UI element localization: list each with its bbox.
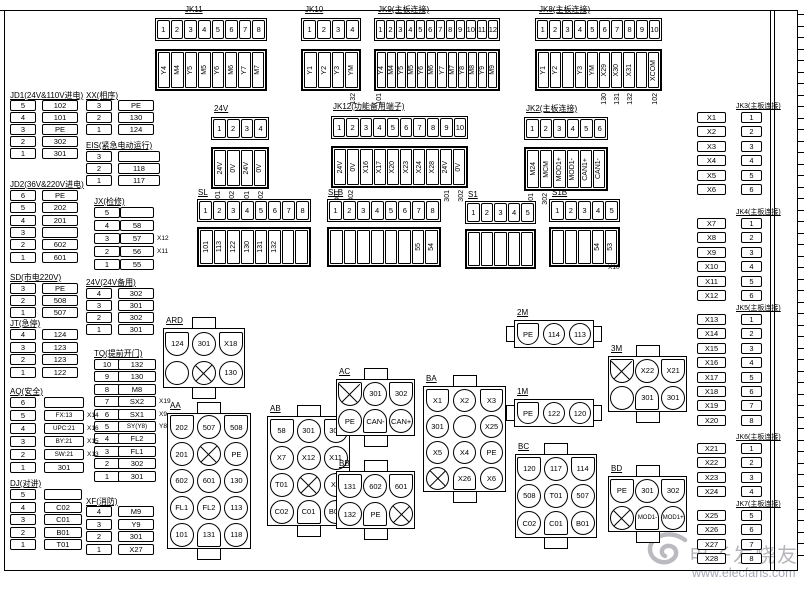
frame-tick bbox=[797, 210, 804, 211]
list-tq-val-SX1: SX1 bbox=[118, 409, 156, 420]
strip-jk12-label-text: 0V bbox=[350, 163, 357, 172]
strip-sl-label-text: 101 bbox=[203, 241, 210, 253]
list-sd-title: SD(市电220V) bbox=[10, 274, 61, 283]
strip-v24-label-text: 24V bbox=[217, 162, 224, 174]
strip-jk11-pin-7: 7 bbox=[239, 20, 252, 39]
frame-tick bbox=[797, 486, 804, 487]
frame-tick bbox=[797, 325, 804, 326]
block-ard-pin-124: 124 bbox=[165, 332, 189, 356]
strip-jk2-wire-text: 302 bbox=[542, 193, 549, 205]
frame-tick bbox=[797, 555, 804, 556]
jk5-title: JK5(主板连接) bbox=[736, 305, 781, 313]
strip-v24-title: 24V bbox=[214, 105, 228, 114]
strip-v24-pin-2: 2 bbox=[227, 119, 240, 138]
strip-jk11-pin-1: 1 bbox=[157, 20, 170, 39]
strip-slb-pin-row: 12345678 bbox=[327, 199, 441, 222]
block-m2-pin-113: 113 bbox=[569, 323, 591, 345]
block-ab-pin-301: 301 bbox=[297, 419, 321, 443]
list-tq-num-1: 1 bbox=[94, 471, 120, 482]
strip-jk9-pin-9: 9 bbox=[456, 20, 465, 39]
jk4-terminal-x12: X12 bbox=[697, 290, 726, 301]
strip-jk12-label-text: 0V bbox=[455, 163, 462, 172]
strip-s1b-label-text: 53 bbox=[607, 243, 614, 251]
strip-jk8-label-row: Y1Y2Y3YMX29X30X31XCOM bbox=[535, 49, 662, 91]
strip-jk11-pin-5: 5 bbox=[212, 20, 225, 39]
jk3-terminal-x1: X1 bbox=[697, 112, 726, 123]
block-ard-pin-130: 130 bbox=[219, 361, 243, 385]
list-jd1-val-PE: PE bbox=[42, 124, 78, 135]
strip-jk12-label-text: X23 bbox=[403, 161, 410, 173]
block-aa-pin-118: 118 bbox=[224, 523, 248, 547]
strip-jk8-pin-row: 12345678910 bbox=[535, 18, 662, 41]
annotation-x13: X13 bbox=[87, 451, 99, 458]
block-m1-pin-pe: PE bbox=[517, 402, 539, 424]
block-bd: PE301302MOD1-MOD1+ bbox=[608, 476, 687, 532]
frame-tick bbox=[797, 417, 804, 418]
block-m2-pin-pe: PE bbox=[517, 323, 539, 345]
strip-s1b-pin-row: 12345 bbox=[549, 199, 620, 222]
list-v24b-num-3: 3 bbox=[86, 300, 112, 311]
strip-jk8-pin-4: 4 bbox=[574, 20, 585, 39]
strip-jk9-label-text: Y7 bbox=[439, 66, 446, 75]
block-bd-pin-grid: PE301302MOD1-MOD1+ bbox=[609, 477, 686, 531]
strip-jk10-label-text: Y2 bbox=[321, 66, 328, 75]
strip-jk8-pin-6: 6 bbox=[599, 20, 610, 39]
block-aa-pin-507: 507 bbox=[197, 415, 221, 439]
strip-jk10-label-2: Y2 bbox=[318, 52, 331, 88]
block-aa-pin-113: 113 bbox=[224, 496, 248, 520]
strip-v24-label-2: 0V bbox=[227, 150, 239, 186]
block-ba-pin-x1: X1 bbox=[426, 389, 449, 412]
strip-jk12-wire-text: 301 bbox=[444, 190, 451, 202]
block-ac-pin-pe: PE bbox=[338, 409, 362, 433]
strip-jk8-label-9 bbox=[636, 52, 647, 88]
strip-jk9-label-3: Y5 bbox=[397, 52, 406, 88]
list-jd2-val-602: 602 bbox=[42, 239, 78, 250]
jk4-pin-5: 5 bbox=[741, 276, 762, 287]
jk6-pin-4: 4 bbox=[741, 486, 762, 497]
strip-jk10-label-text: Y3 bbox=[334, 66, 341, 75]
wiring-diagram-page: 电子发烧友 www.elecfans.com JK1112345678Y4M4Y… bbox=[0, 0, 804, 593]
block-bc-pin-508: 508 bbox=[517, 484, 541, 508]
strip-s1b-label-1 bbox=[552, 230, 564, 264]
block-bc: 120117114508T01507C02C01B01 bbox=[515, 454, 597, 538]
list-xx-num-1: 1 bbox=[86, 124, 112, 135]
block-ba-pin-x2: X2 bbox=[453, 389, 476, 412]
strip-v24-label-text: 24V bbox=[243, 162, 250, 174]
strip-jk8-wire-text: 102 bbox=[652, 93, 659, 105]
frame-tick bbox=[797, 371, 804, 372]
jk3-pin-5: 5 bbox=[741, 170, 762, 181]
strip-jk8-label-text: Y3 bbox=[577, 66, 584, 75]
strip-sl-pin-8: 8 bbox=[296, 201, 309, 220]
frame-bottom-line bbox=[4, 570, 797, 571]
strip-v24-label-1: 24V bbox=[214, 150, 226, 186]
strip-jk9-label-row: Y4M4Y5M5Y6M6Y7M7Y8M8Y9M9 bbox=[374, 49, 500, 91]
block-bc-pin-120: 120 bbox=[517, 457, 541, 481]
frame-tick bbox=[797, 26, 804, 27]
block-aa-pin-602: 602 bbox=[170, 469, 194, 493]
block-m3-tab-bottom bbox=[636, 411, 660, 423]
block-ac-pin-can+: CAN+ bbox=[389, 409, 413, 433]
strip-jk8-wire-text: 132 bbox=[627, 93, 634, 105]
strip-jk11-label-text: M7 bbox=[254, 65, 261, 75]
block-ba-pin-x4: X4 bbox=[453, 441, 476, 464]
list-v24b-num-2: 2 bbox=[86, 312, 112, 323]
list-sd-val-PE: PE bbox=[42, 283, 78, 294]
list-tq-val-SY(Y8): SY(Y8) bbox=[118, 421, 156, 432]
block-m3-blank-pin bbox=[610, 386, 634, 410]
jk7-pin-6: 6 bbox=[741, 524, 762, 535]
list-dj-val-C01: C01 bbox=[44, 514, 82, 525]
block-aa-pin-131: 131 bbox=[197, 523, 221, 547]
strip-sl-label-6: 132 bbox=[268, 230, 281, 264]
list-v24b-val-301: 301 bbox=[118, 300, 154, 311]
strip-jk8-wire-text: 130 bbox=[601, 93, 608, 105]
strip-v24-pin-row: 1234 bbox=[211, 117, 269, 140]
list-tq-val-132: 132 bbox=[118, 359, 156, 370]
list-tq-num-7: 7 bbox=[94, 396, 120, 407]
list-tq-val-301: 301 bbox=[118, 471, 156, 482]
frame-tick bbox=[797, 83, 804, 84]
jk5-pin-6: 6 bbox=[741, 386, 762, 397]
strip-jk9-label-text: Y5 bbox=[398, 66, 405, 75]
strip-jk10-pin-3: 3 bbox=[332, 20, 345, 39]
block-bb-tab-bottom bbox=[364, 528, 388, 540]
list-jd2-num-2: 2 bbox=[10, 239, 36, 250]
strip-jk9-label-text: M9 bbox=[489, 65, 496, 75]
strip-jk8-label-text: X29 bbox=[601, 64, 608, 76]
strip-sl-pin-4: 4 bbox=[241, 201, 254, 220]
block-m1-pin-grid: PE122120 bbox=[515, 400, 593, 426]
strip-slb-pin-5: 5 bbox=[385, 201, 398, 220]
strip-jk11-label-text: Y7 bbox=[241, 66, 248, 75]
jk3-pin-2: 2 bbox=[741, 126, 762, 137]
list-xf-val-301: 301 bbox=[118, 531, 154, 542]
block-m3-crossed-pin bbox=[610, 359, 634, 383]
block-ac-pin-can-: CAN- bbox=[363, 409, 387, 433]
list-tq-num-10: 10 bbox=[94, 359, 120, 370]
block-aa-pin-pe: PE bbox=[224, 442, 248, 466]
block-ard-pin-301: 301 bbox=[192, 332, 216, 356]
frame-left-line bbox=[4, 10, 5, 571]
block-m1-pin-120: 120 bbox=[569, 402, 591, 424]
strip-jk12-label-text: 24V bbox=[442, 161, 449, 173]
jk5-terminal-x13: X13 bbox=[697, 314, 726, 325]
strip-v24-label-4: 0V bbox=[254, 150, 266, 186]
jk6-pin-2: 2 bbox=[741, 457, 762, 468]
list-v24b-val-301: 301 bbox=[118, 324, 154, 335]
strip-jk11-title: JK11 bbox=[185, 6, 203, 15]
strip-jk9-label-1: Y4 bbox=[377, 52, 386, 88]
frame-right-inner-line-2 bbox=[774, 10, 775, 571]
list-jd2-val-202: 202 bbox=[42, 202, 78, 213]
strip-jk9-label-text: M4 bbox=[388, 65, 395, 75]
strip-s1b-label-2 bbox=[565, 230, 577, 264]
strip-jk8-wire-131: 131 bbox=[611, 93, 624, 117]
strip-jk11-label-2: M4 bbox=[171, 52, 183, 88]
strip-jk9-pin-10: 10 bbox=[466, 20, 476, 39]
strip-jk12-label-text: X20 bbox=[389, 161, 396, 173]
strip-jk9-label-12: M9 bbox=[488, 52, 497, 88]
strip-jk12-label-6: X23 bbox=[400, 149, 412, 185]
strip-jk2-pin-4: 4 bbox=[567, 119, 580, 138]
strip-jk2-label-3: MOD1+ bbox=[553, 150, 565, 188]
list-v24b-title: 24V(24V备用) bbox=[86, 279, 136, 288]
block-m1-tab-right bbox=[593, 405, 602, 421]
strip-jk11-label-1: Y4 bbox=[158, 52, 170, 88]
block-ab-pin-x7: X7 bbox=[270, 446, 294, 470]
strip-jk8-wire-132: 132 bbox=[624, 93, 637, 117]
strip-jk10-label-3: Y3 bbox=[332, 52, 345, 88]
block-ba: X1X2X3301X25X5X4PEX26X6 bbox=[423, 386, 506, 492]
strip-s1-pin-2: 2 bbox=[481, 203, 494, 222]
list-jt-num-1: 1 bbox=[10, 367, 36, 378]
strip-sl-pin-7: 7 bbox=[282, 201, 295, 220]
list-sd-num-1: 1 bbox=[10, 307, 36, 318]
strip-s1-pin-3: 3 bbox=[494, 203, 507, 222]
strip-jk9-pin-7: 7 bbox=[436, 20, 445, 39]
strip-jk8-label-text: Y2 bbox=[552, 66, 559, 75]
block-aa-crossed-pin bbox=[197, 442, 221, 466]
list-dj-val-C02: C02 bbox=[44, 502, 82, 513]
strip-jk11-label-3: Y5 bbox=[185, 52, 197, 88]
strip-jk9-label-10: M8 bbox=[468, 52, 477, 88]
list-jx-val-57: 57 bbox=[120, 233, 154, 244]
strip-jk9-label-5: Y6 bbox=[417, 52, 426, 88]
list-sd-num-3: 3 bbox=[10, 283, 36, 294]
list-jx-num-3: 3 bbox=[94, 233, 120, 244]
frame-tick bbox=[797, 152, 804, 153]
jk4-terminal-x7: X7 bbox=[697, 218, 726, 229]
strip-jk10-label-text: Y1 bbox=[307, 66, 314, 75]
annotation-x19: X19 bbox=[159, 398, 171, 405]
strip-s1b-title: S1B bbox=[552, 189, 567, 198]
strip-jk12-pin-7: 7 bbox=[413, 118, 425, 137]
annotation-x16: X16 bbox=[87, 425, 99, 432]
annotation-x12: X12 bbox=[157, 235, 169, 242]
list-jt-num-2: 2 bbox=[10, 354, 36, 365]
list-tq-val-SX2: SX2 bbox=[118, 396, 156, 407]
list-v24b-val-302: 302 bbox=[118, 312, 154, 323]
strip-jk8-wire-text: 131 bbox=[614, 93, 621, 105]
strip-jk11-label-text: Y6 bbox=[214, 66, 221, 75]
jk4-title: JK4(主板连接) bbox=[736, 209, 781, 217]
jk5-pin-3: 3 bbox=[741, 343, 762, 354]
frame-tick bbox=[797, 302, 804, 303]
list-tq-num-9: 9 bbox=[94, 371, 120, 382]
jk6-pin-1: 1 bbox=[741, 443, 762, 454]
strip-s1b-label-row: 5453 bbox=[549, 227, 620, 267]
strip-sl-title: SL bbox=[198, 189, 208, 198]
list-jd2-num-1: 1 bbox=[10, 252, 36, 263]
strip-s1b-pin-3: 3 bbox=[578, 201, 591, 220]
block-ard: 124301X18130 bbox=[163, 328, 245, 388]
strip-jk10-label-row: Y1Y2Y3YM bbox=[301, 49, 361, 91]
list-tq-title: TQ(提前开门) bbox=[94, 350, 142, 359]
list-aq-val-SW:21: SW:21 bbox=[44, 449, 84, 460]
list-xx-num-3: 3 bbox=[86, 100, 112, 111]
list-jd2-val-blank bbox=[42, 227, 78, 238]
jk4-terminal-x11: X11 bbox=[697, 276, 726, 287]
annotation-x10: X10 bbox=[608, 264, 620, 271]
list-jt-val-123: 123 bbox=[42, 342, 78, 353]
block-ba-pin-x26: X26 bbox=[453, 467, 476, 490]
list-jd1-val-102: 102 bbox=[42, 100, 78, 111]
list-jd2-num-4: 4 bbox=[10, 215, 36, 226]
block-ba-pin-x6: X6 bbox=[480, 467, 503, 490]
strip-jk2-label-6: CAN1- bbox=[593, 150, 605, 188]
block-bd-pin-mod1+: MOD1+ bbox=[661, 506, 685, 530]
strip-jk9-pin-11: 11 bbox=[477, 20, 487, 39]
strip-jk2-pin-3: 3 bbox=[553, 119, 566, 138]
block-bd-pin-mod1-: MOD1- bbox=[635, 506, 659, 530]
strip-sl-pin-1: 1 bbox=[199, 201, 212, 220]
strip-s1b-label-4: 54 bbox=[592, 230, 604, 264]
strip-sl-pin-2: 2 bbox=[213, 201, 226, 220]
strip-jk9-label-4: M5 bbox=[407, 52, 416, 88]
jk4-pin-1: 1 bbox=[741, 218, 762, 229]
strip-s1-label-2 bbox=[481, 232, 493, 266]
strip-s1-pin-row: 12345 bbox=[465, 201, 536, 224]
jk7-terminal-x28: X28 bbox=[697, 553, 726, 564]
strip-sl-pin-5: 5 bbox=[255, 201, 268, 220]
strip-slb-label-7: 55 bbox=[412, 230, 425, 264]
block-m1-title: 1M bbox=[517, 388, 528, 397]
list-v24b-val-302: 302 bbox=[118, 288, 154, 299]
strip-jk12-label-9: 24V bbox=[440, 149, 452, 185]
block-bb-crossed-pin bbox=[389, 502, 413, 526]
list-tq-num-8: 8 bbox=[94, 384, 120, 395]
strip-slb-label-6 bbox=[398, 230, 411, 264]
block-aa-pin-101: 101 bbox=[170, 523, 194, 547]
strip-slb-label-1 bbox=[330, 230, 343, 264]
strip-jk12-pin-5: 5 bbox=[387, 118, 399, 137]
strip-jk2-title: JK2(主板连接) bbox=[526, 105, 577, 114]
strip-jk12-label-text: X24 bbox=[416, 161, 423, 173]
block-bb-pin-602: 602 bbox=[363, 474, 387, 498]
strip-sl-label-text: 130 bbox=[244, 241, 251, 253]
strip-jk9-pin-row: 123456789101112 bbox=[374, 18, 500, 41]
frame-tick bbox=[797, 290, 804, 291]
list-eis-num-2: 2 bbox=[86, 163, 112, 174]
list-tq-val-FL1: FL1 bbox=[118, 446, 156, 457]
jk3-terminal-x5: X5 bbox=[697, 170, 726, 181]
strip-jk9-label-text: M6 bbox=[428, 65, 435, 75]
block-aa-pin-508: 508 bbox=[224, 415, 248, 439]
strip-s1b-label-3 bbox=[578, 230, 590, 264]
block-aa-title: AA bbox=[170, 402, 181, 411]
list-eis-val-117: 117 bbox=[118, 175, 160, 186]
list-xf-val-Y9: Y9 bbox=[118, 519, 154, 530]
strip-jk8-wire-130: 130 bbox=[599, 93, 612, 117]
list-dj-val-blank bbox=[44, 489, 82, 500]
block-m1: PE122120 bbox=[514, 399, 594, 427]
strip-jk12-pin-3: 3 bbox=[360, 118, 372, 137]
list-v24b-num-1: 1 bbox=[86, 324, 112, 335]
jk3-terminal-x2: X2 bbox=[697, 126, 726, 137]
strip-slb-pin-2: 2 bbox=[343, 201, 356, 220]
strip-sl-pin-6: 6 bbox=[268, 201, 281, 220]
strip-slb-label-3 bbox=[357, 230, 370, 264]
jk5-pin-2: 2 bbox=[741, 328, 762, 339]
strip-jk2-pin-6: 6 bbox=[594, 119, 607, 138]
block-m3-title: 3M bbox=[611, 345, 622, 354]
strip-jk10-label-text: YM bbox=[348, 65, 355, 76]
strip-jk8-label-8: X31 bbox=[623, 52, 634, 88]
list-jx-val-56: 56 bbox=[120, 246, 154, 257]
jk3-pin-4: 4 bbox=[741, 155, 762, 166]
strip-jk12-wire-301: 301 bbox=[441, 190, 455, 214]
jk7-terminal-x27: X27 bbox=[697, 539, 726, 550]
strip-jk8-pin-8: 8 bbox=[624, 20, 635, 39]
strip-slb-pin-4: 4 bbox=[371, 201, 384, 220]
strip-jk12-label-text: X17 bbox=[376, 161, 383, 173]
strip-jk8-label-6: X29 bbox=[599, 52, 610, 88]
block-bc-title: BC bbox=[518, 443, 529, 452]
block-ba-title: BA bbox=[426, 375, 437, 384]
strip-sl-label-1: 101 bbox=[200, 230, 213, 264]
list-dj-num-4: 4 bbox=[10, 502, 36, 513]
strip-v24-label-text: 0V bbox=[256, 164, 263, 173]
strip-jk9-pin-2: 2 bbox=[386, 20, 395, 39]
strip-jk9-pin-6: 6 bbox=[426, 20, 435, 39]
strip-sl-label-row: 101113122130131132 bbox=[197, 227, 311, 267]
strip-jk9-label-11: Y9 bbox=[478, 52, 487, 88]
strip-sl-label-text: 122 bbox=[230, 241, 237, 253]
block-ard-pin-x18: X18 bbox=[219, 332, 243, 356]
strip-slb-label-8: 54 bbox=[425, 230, 438, 264]
block-ba-pin-x5: X5 bbox=[426, 441, 449, 464]
jk5-terminal-x14: X14 bbox=[697, 328, 726, 339]
block-aa-pin-601: 601 bbox=[197, 469, 221, 493]
block-m3-pin-301: 301 bbox=[661, 386, 685, 410]
list-jt-val-123: 123 bbox=[42, 354, 78, 365]
strip-jk12-pin-row: 12345678910 bbox=[331, 116, 468, 139]
frame-tick bbox=[797, 164, 804, 165]
block-bc-pin-117: 117 bbox=[544, 457, 568, 481]
strip-jk2-pin-5: 5 bbox=[580, 119, 593, 138]
strip-jk11-pin-4: 4 bbox=[198, 20, 211, 39]
list-jd2-num-6: 6 bbox=[10, 190, 36, 201]
strip-jk9-label-text: Y6 bbox=[418, 66, 425, 75]
list-eis-num-1: 1 bbox=[86, 175, 112, 186]
strip-jk2-pin-1: 1 bbox=[526, 119, 539, 138]
strip-s1b-pin-5: 5 bbox=[605, 201, 618, 220]
list-jd1-val-101: 101 bbox=[42, 112, 78, 123]
block-ab-pin-58: 58 bbox=[270, 419, 294, 443]
block-ab-title: AB bbox=[270, 405, 281, 414]
strip-jk9-pin-12: 12 bbox=[488, 20, 498, 39]
list-tq-val-FL2: FL2 bbox=[118, 433, 156, 444]
strip-jk12-label-3: X16 bbox=[360, 149, 372, 185]
strip-sl-label-8 bbox=[295, 230, 308, 264]
strip-slb-pin-8: 8 bbox=[426, 201, 439, 220]
strip-slb-label-text: 55 bbox=[415, 243, 422, 251]
frame-tick bbox=[797, 60, 804, 61]
list-jd1-num-3: 3 bbox=[10, 124, 36, 135]
list-jx-num-4: 4 bbox=[94, 220, 120, 231]
block-m2-title: 2M bbox=[517, 309, 528, 318]
jk5-terminal-x19: X19 bbox=[697, 400, 726, 411]
jk3-pin-6: 6 bbox=[741, 184, 762, 195]
strip-jk11-pin-row: 12345678 bbox=[155, 18, 267, 41]
frame-tick bbox=[797, 106, 804, 107]
frame-tick bbox=[797, 359, 804, 360]
list-xx-val-130: 130 bbox=[118, 112, 154, 123]
frame-tick bbox=[797, 267, 804, 268]
block-bb-pin-132: 132 bbox=[338, 502, 362, 526]
